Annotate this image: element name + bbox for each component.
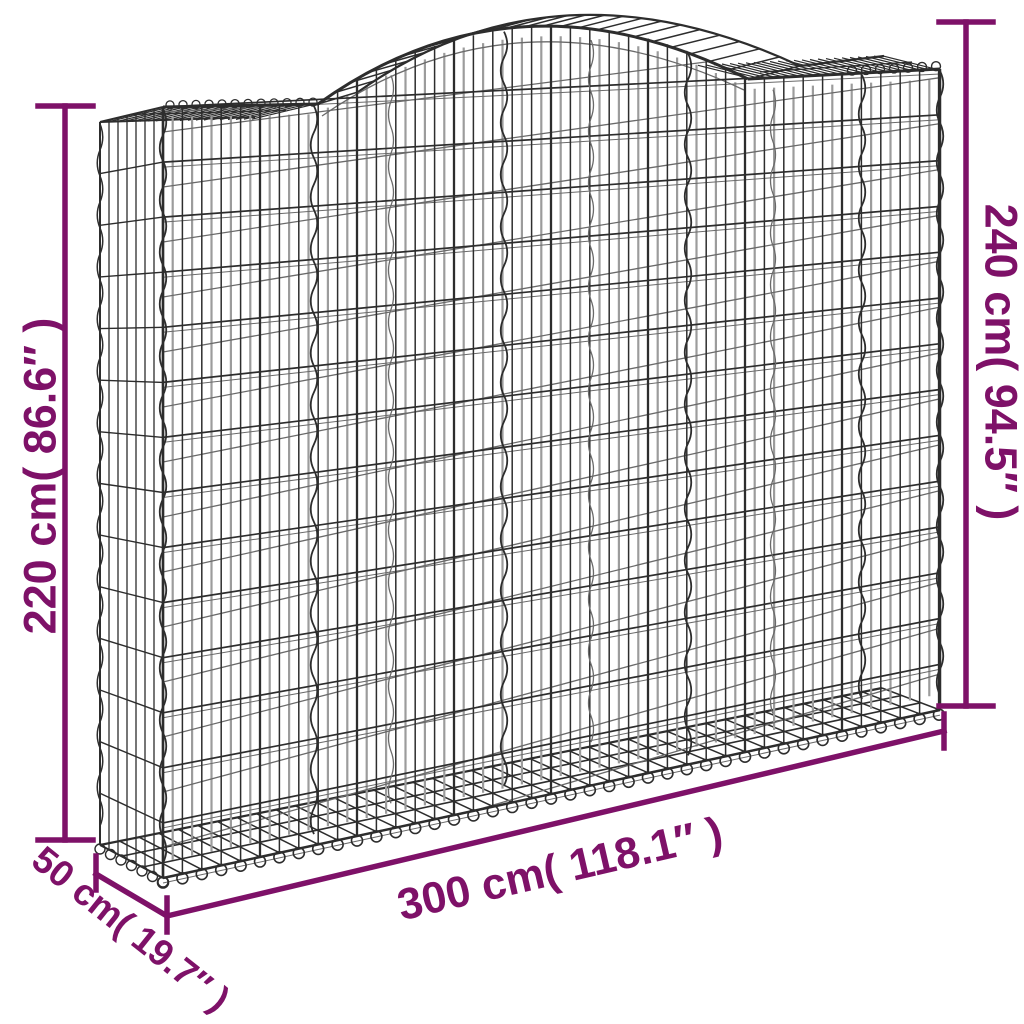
gabion-wireframe xyxy=(95,15,945,957)
dimension-label-height-left: 220 cm( 86.6″ ) xyxy=(15,318,66,635)
dimension-label-depth: 50 cm( 19.7″ ) xyxy=(24,838,237,1019)
dimension-label-width: 300 cm( 118.1″ ) xyxy=(393,808,727,930)
gabion-diagram-canvas: 220 cm( 86.6″ ) 240 cm( 94.5″ ) 300 cm( … xyxy=(0,0,1024,1024)
dimension-label-height-right: 240 cm( 94.5″ ) xyxy=(976,204,1024,521)
product-dimension-diagram: 220 cm( 86.6″ ) 240 cm( 94.5″ ) 300 cm( … xyxy=(0,0,1024,1024)
